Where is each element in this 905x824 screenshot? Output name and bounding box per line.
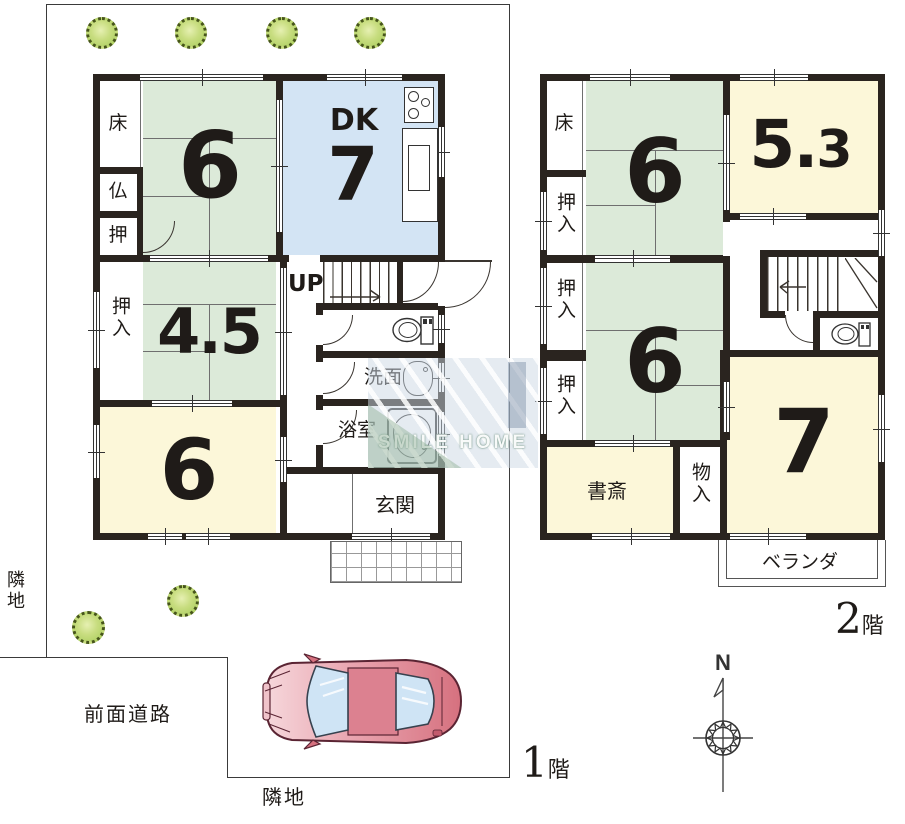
toilet-icon	[390, 314, 436, 348]
tree-icon	[175, 17, 207, 49]
tree-icon	[86, 17, 118, 49]
wall-segment	[760, 311, 785, 318]
tree-icon	[167, 585, 199, 617]
sliding-door	[723, 115, 730, 210]
wall-segment	[813, 318, 820, 350]
sliding-door	[595, 440, 670, 447]
wall-segment	[760, 250, 767, 318]
room-size-53-f2: 5.3	[749, 112, 850, 178]
road-boundary-right	[227, 657, 228, 778]
wall-segment	[316, 303, 445, 310]
entrance-sliding-door	[352, 533, 430, 540]
wall-segment	[673, 447, 680, 533]
sliding-door	[595, 255, 670, 263]
room-label-oshiire1-f2: 押入	[555, 192, 574, 236]
room-label-storage-f2: 物入	[690, 462, 709, 506]
wall-segment	[93, 211, 143, 218]
floor1-label: 1階	[521, 738, 570, 787]
stairs-up-label: UP	[288, 273, 324, 296]
partition-line	[140, 81, 141, 167]
wall-segment	[540, 170, 586, 177]
window	[540, 192, 547, 250]
wall-segment	[316, 445, 323, 474]
window	[590, 74, 670, 81]
window	[438, 127, 445, 177]
window	[878, 210, 885, 256]
wall-segment	[280, 467, 445, 474]
site-boundary-right	[509, 4, 510, 778]
window	[740, 74, 808, 81]
compass-north-label: N	[715, 650, 731, 675]
sliding-door	[276, 100, 283, 232]
sliding-door	[740, 213, 806, 220]
road-boundary-top	[0, 657, 227, 658]
car-icon	[260, 653, 465, 750]
wall-segment	[316, 303, 323, 315]
front-door-leaf	[445, 260, 492, 262]
window	[438, 363, 445, 392]
floorplan-page: 床 仏 押 6 DK 7 押入 4.5 6 UP 洗面 浴室 玄関	[0, 0, 905, 824]
sliding-door	[280, 268, 287, 395]
stairs-down-arrow	[770, 278, 810, 296]
sliding-door	[150, 255, 268, 262]
sliding-door	[723, 382, 730, 432]
room-size-7-f2: 7	[773, 398, 832, 486]
wall-segment	[813, 311, 878, 318]
wall-segment	[760, 250, 878, 257]
floor2-label: 2階	[835, 594, 884, 643]
stairs-up-arrow	[328, 286, 392, 302]
stairs-winder-lines	[845, 258, 878, 310]
window	[438, 412, 445, 456]
floor1-number: 1	[521, 738, 548, 787]
room-size-tatami6-bottom-f2: 6	[624, 318, 683, 406]
window	[93, 425, 100, 478]
wall-segment	[93, 255, 445, 262]
sink-icon	[403, 361, 433, 396]
room-size-tatami6-top-f2: 6	[624, 128, 683, 216]
sliding-door	[152, 400, 232, 407]
front-road-label: 前面道路	[84, 705, 172, 725]
site-boundary-top	[46, 4, 510, 5]
hall-opening	[723, 222, 730, 256]
room-size-tatami6-bottom-f1: 6	[160, 428, 216, 512]
wall-segment	[316, 395, 323, 410]
window	[730, 533, 806, 540]
window	[878, 395, 885, 462]
wall-segment	[316, 345, 323, 362]
wall-segment	[316, 351, 445, 358]
tree-icon	[72, 611, 105, 644]
window	[592, 533, 670, 540]
adjacent-land-label-left: 隣地	[6, 570, 24, 612]
entrance-porch-tiles	[330, 541, 462, 583]
window	[148, 533, 182, 540]
room-label-bathroom-f1: 浴室	[338, 421, 376, 440]
room-size-tatami6-top-f1: 6	[178, 120, 240, 212]
room-entrance-f1	[287, 474, 438, 533]
entrance-step-line	[352, 474, 353, 533]
bathtub-icon	[387, 408, 437, 464]
window	[540, 368, 547, 434]
window	[140, 74, 263, 81]
window	[186, 533, 230, 540]
tree-icon	[266, 17, 298, 49]
wall-segment	[878, 74, 885, 540]
tree-icon	[354, 17, 386, 49]
room-label-oshiire3-f2: 押入	[555, 374, 574, 418]
room-label-study-f2: 書斎	[587, 482, 627, 502]
wall-segment	[316, 399, 445, 406]
front-door-opening	[438, 262, 445, 306]
window	[540, 268, 547, 344]
floor2-number: 2	[835, 594, 862, 643]
watermark-bar	[508, 362, 526, 428]
window	[438, 315, 445, 343]
room-label-washroom-f1: 洗面	[364, 368, 402, 387]
room-label-entrance-f1: 玄関	[375, 496, 415, 516]
adjacent-land-label-bottom: 隣地	[262, 788, 306, 808]
hall-opening	[289, 255, 320, 262]
compass-icon: N	[688, 650, 758, 800]
site-boundary-left	[46, 4, 47, 658]
window	[327, 74, 402, 81]
room-size-tatami45-f1: 4.5	[157, 301, 261, 363]
window	[93, 292, 100, 368]
veranda-label: ベランダ	[762, 553, 838, 572]
wall-segment	[720, 350, 885, 357]
room-label-closet-f1: 押	[108, 226, 127, 245]
stove-icon	[404, 87, 434, 123]
room-label-oshiire-f1: 押入	[110, 296, 129, 340]
room-label-butsudan-f1: 仏	[108, 182, 127, 201]
floor2-kanji: 階	[862, 613, 884, 638]
wall-segment	[93, 167, 143, 174]
wall-segment	[540, 350, 586, 361]
front-door-swing-arc	[445, 262, 491, 308]
sliding-door	[280, 437, 287, 482]
toilet-icon	[830, 321, 874, 349]
room-label-oshiire2-f2: 押入	[555, 278, 574, 322]
room-label-tokonoma-f1: 床	[108, 114, 127, 133]
room-label-tokonoma-f2: 床	[554, 114, 573, 133]
site-boundary-bottom	[227, 777, 510, 778]
kitchen-counter-icon	[402, 128, 438, 222]
room-size-dk-f1: 7	[327, 138, 377, 212]
floor1-kanji: 階	[548, 757, 570, 782]
